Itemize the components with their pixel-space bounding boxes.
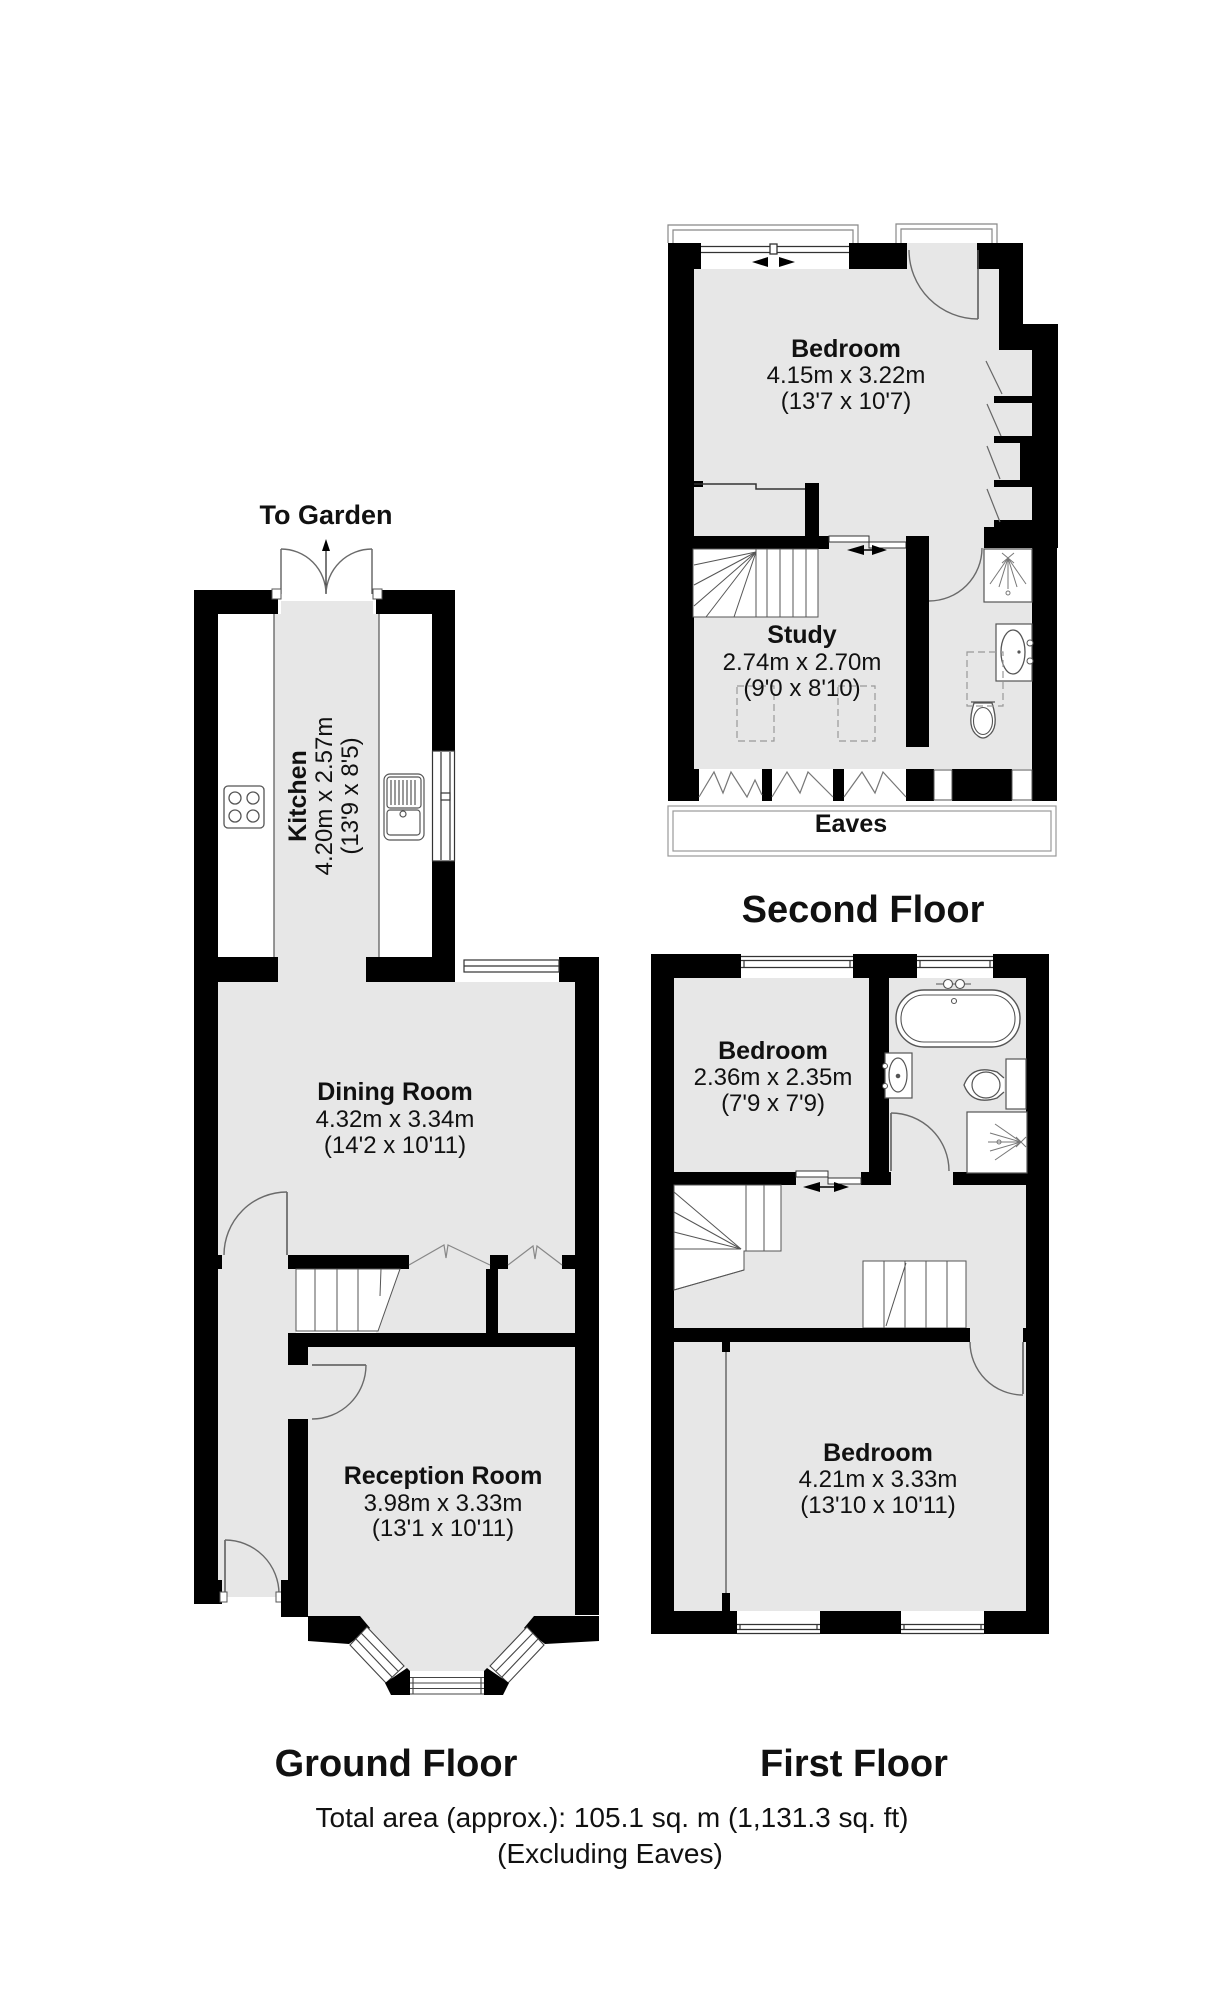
svg-text:Study: Study bbox=[767, 621, 837, 649]
svg-text:(Excluding Eaves): (Excluding Eaves) bbox=[497, 1838, 723, 1869]
svg-text:(13'9 x 8'5): (13'9 x 8'5) bbox=[337, 737, 364, 854]
svg-text:Total area (approx.): 105.1 sq: Total area (approx.): 105.1 sq. m (1,131… bbox=[316, 1802, 909, 1833]
svg-text:(14'2 x 10'11): (14'2 x 10'11) bbox=[324, 1132, 466, 1159]
svg-text:3.98m x 3.33m: 3.98m x 3.33m bbox=[364, 1490, 523, 1517]
svg-text:(13'7 x 10'7): (13'7 x 10'7) bbox=[781, 388, 912, 415]
svg-text:(7'9 x 7'9): (7'9 x 7'9) bbox=[721, 1090, 825, 1117]
svg-text:2.74m x 2.70m: 2.74m x 2.70m bbox=[723, 649, 882, 676]
svg-text:Reception Room: Reception Room bbox=[344, 1462, 543, 1490]
svg-text:First Floor: First Floor bbox=[760, 1743, 948, 1785]
svg-text:Second Floor: Second Floor bbox=[742, 889, 985, 931]
svg-text:Ground Floor: Ground Floor bbox=[275, 1743, 518, 1785]
svg-text:(9'0 x 8'10): (9'0 x 8'10) bbox=[743, 675, 860, 702]
svg-text:(13'1 x 10'11): (13'1 x 10'11) bbox=[372, 1515, 514, 1542]
svg-text:4.15m x 3.22m: 4.15m x 3.22m bbox=[767, 362, 926, 389]
svg-text:Dining Room: Dining Room bbox=[317, 1078, 473, 1106]
svg-text:(13'10 x 10'11): (13'10 x 10'11) bbox=[800, 1492, 955, 1519]
svg-text:Bedroom: Bedroom bbox=[791, 335, 901, 363]
svg-text:Bedroom: Bedroom bbox=[823, 1439, 933, 1467]
svg-text:4.21m x 3.33m: 4.21m x 3.33m bbox=[799, 1466, 958, 1493]
svg-text:4.20m x 2.57m: 4.20m x 2.57m bbox=[311, 717, 338, 876]
svg-text:Bedroom: Bedroom bbox=[718, 1037, 828, 1065]
svg-text:2.36m x 2.35m: 2.36m x 2.35m bbox=[694, 1064, 853, 1091]
svg-text:4.32m x 3.34m: 4.32m x 3.34m bbox=[316, 1106, 475, 1133]
svg-text:To Garden: To Garden bbox=[259, 500, 392, 530]
svg-text:Eaves: Eaves bbox=[815, 810, 887, 838]
svg-text:Kitchen: Kitchen bbox=[284, 750, 312, 842]
